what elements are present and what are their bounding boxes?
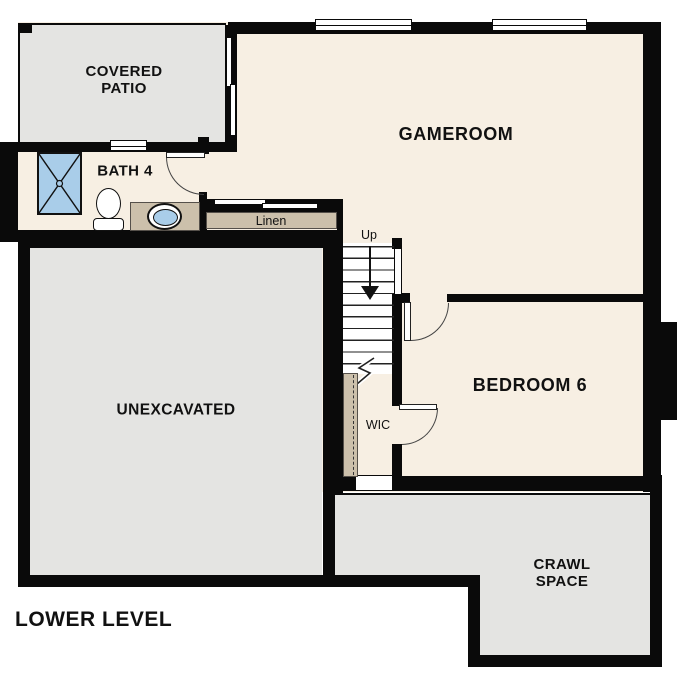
bedroom6-door-leaf bbox=[404, 302, 411, 341]
window-gameroom-top-right bbox=[492, 19, 587, 31]
crawl-top-hairline bbox=[335, 493, 652, 495]
stairs-up-arrow-line bbox=[369, 246, 371, 288]
wall-crawl-bottom bbox=[468, 655, 662, 667]
stairs-up-label: Up bbox=[361, 228, 377, 242]
wall-right-bumpout bbox=[661, 322, 677, 420]
floor-plan-lower-level: COVERED PATIO GAMEROOM BATH 4 Linen Up U… bbox=[0, 0, 687, 687]
unexcavated-label: UNEXCAVATED bbox=[117, 401, 236, 419]
wic-door-leaf bbox=[399, 404, 437, 410]
wall-wic-bottom-stub bbox=[323, 476, 358, 491]
wall-bedroom-top bbox=[447, 294, 649, 302]
wall-bath-left-exterior bbox=[0, 142, 18, 242]
covered-patio-label: COVERED PATIO bbox=[86, 64, 163, 98]
vanity-sink-basin bbox=[153, 209, 178, 226]
gameroom-label: GAMEROOM bbox=[399, 124, 514, 144]
patio-slider-panel-outer bbox=[226, 37, 232, 87]
covered-patio-label-line1: COVERED bbox=[86, 63, 163, 80]
linen-bypass-door-right bbox=[262, 203, 318, 209]
wall-right-exterior bbox=[643, 22, 661, 492]
patio-outline-left bbox=[18, 23, 20, 143]
stair-break-line bbox=[355, 356, 379, 386]
window-mullion bbox=[493, 25, 586, 26]
wall-unexcavated-bottom bbox=[18, 575, 480, 587]
bath4-door-leaf bbox=[166, 152, 205, 158]
wall-crawl-right bbox=[650, 475, 662, 667]
crawl-space-label-line1: CRAWL bbox=[534, 556, 591, 573]
covered-patio-label-line2: PATIO bbox=[101, 80, 147, 97]
patio-slider-panel-inner bbox=[230, 84, 236, 136]
stair-railing bbox=[394, 249, 402, 294]
crawl-space-floor-upper bbox=[335, 495, 481, 575]
wall-unexcavated-top bbox=[18, 230, 343, 248]
window-patio-bath bbox=[110, 140, 147, 151]
crawl-space-label: CRAWL SPACE bbox=[534, 557, 591, 591]
patio-corner-post bbox=[18, 23, 32, 33]
wall-bedroom-bottom bbox=[392, 476, 661, 491]
bedroom6-label: BEDROOM 6 bbox=[473, 375, 587, 395]
linen-label: Linen bbox=[256, 214, 287, 228]
window-mullion bbox=[111, 146, 146, 147]
window-gameroom-top-left bbox=[315, 19, 412, 31]
wic-label: WIC bbox=[366, 418, 390, 432]
plan-title: LOWER LEVEL bbox=[15, 608, 172, 632]
wall-top-exterior bbox=[228, 22, 661, 34]
stairs-up-arrow-head bbox=[361, 286, 379, 300]
crawl-space-label-line2: SPACE bbox=[536, 573, 589, 590]
shower-stall-icon bbox=[37, 152, 82, 215]
hanging-rod-dashed-icon bbox=[353, 375, 354, 475]
wall-stairwell-east-lower bbox=[392, 444, 402, 491]
window-mullion bbox=[316, 25, 411, 26]
toilet-icon bbox=[96, 188, 121, 219]
wic-shelf bbox=[343, 373, 358, 477]
crawl-access-threshold bbox=[355, 475, 393, 491]
patio-outline-top bbox=[18, 23, 226, 25]
toilet-tank bbox=[93, 218, 124, 231]
linen-bypass-door-left bbox=[214, 199, 266, 205]
wall-crawl-west bbox=[323, 493, 335, 587]
bath4-label: BATH 4 bbox=[97, 164, 152, 181]
wall-unexcavated-left bbox=[18, 230, 30, 587]
wall-crawl-step bbox=[468, 575, 480, 667]
wall-stairwell-west bbox=[323, 232, 343, 493]
